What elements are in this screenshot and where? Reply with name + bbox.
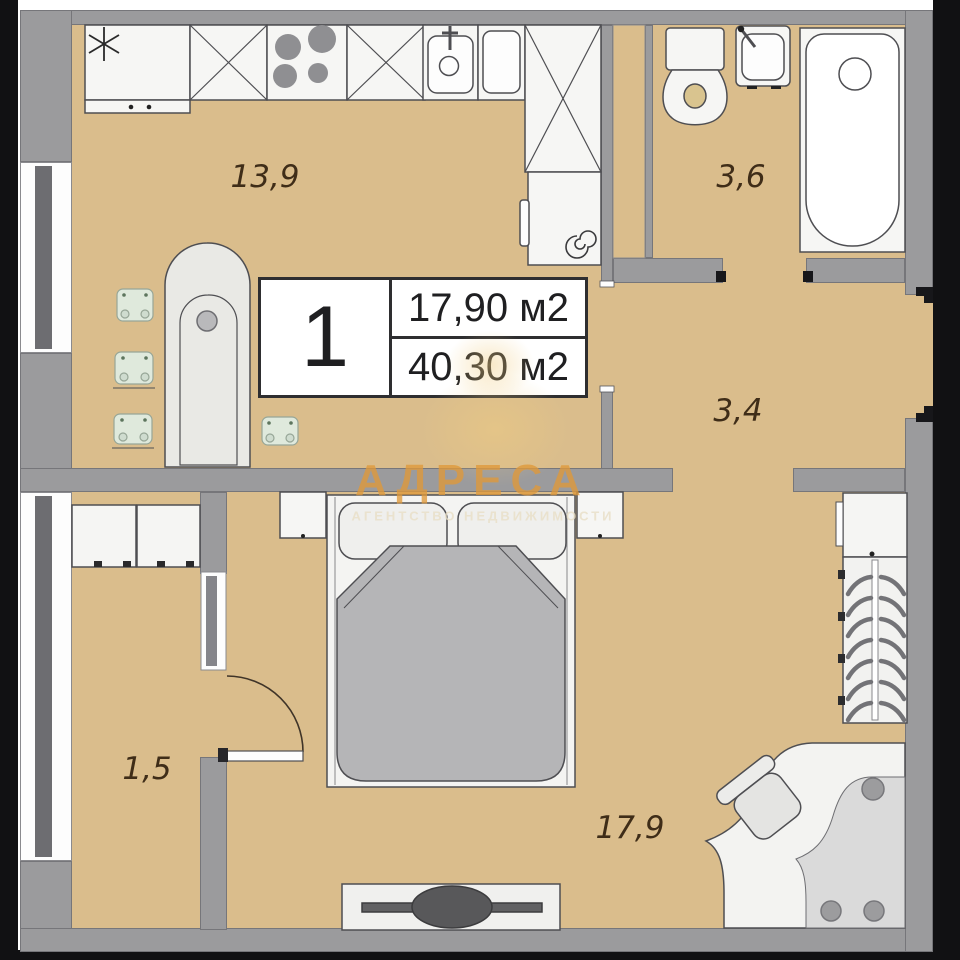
label-balcony-area: 1,5 — [122, 751, 171, 787]
stove — [267, 25, 347, 100]
wardrobe-hangers — [838, 557, 907, 723]
chair — [117, 289, 153, 321]
kitchen-door-jambs — [600, 281, 614, 392]
watermark-subtitle: АГЕНТСТВО НЕДВИЖИМОСТИ — [352, 509, 615, 524]
bathroom-sink — [736, 26, 790, 89]
rooms-count: 1 — [261, 280, 392, 395]
balcony-cabinet — [72, 505, 200, 567]
door-leaf — [227, 751, 303, 761]
kitchen-tall-cabinet — [525, 25, 601, 172]
door-swing-arc — [227, 676, 303, 752]
dining-table — [165, 243, 250, 467]
washing-machine — [520, 172, 601, 265]
living-area: 17,90 м2 — [392, 280, 585, 336]
floor-plan: 13,9 3,6 3,4 1,5 17,9 1 17,90 м2 40,30 м… — [0, 0, 960, 960]
label-bedroom-area: 17,9 — [595, 810, 664, 846]
bed — [327, 495, 575, 787]
chair — [112, 414, 154, 448]
kitchen-cabinet-2 — [347, 25, 425, 100]
chair — [262, 417, 298, 445]
toilet — [663, 28, 727, 125]
kitchen-cabinet-1 — [190, 25, 267, 100]
tv-stand — [342, 884, 560, 930]
label-hallway-area: 3,4 — [713, 393, 762, 429]
desk — [706, 743, 905, 928]
label-bathroom-area: 3,6 — [716, 159, 765, 195]
vent-shaft — [613, 25, 645, 258]
bathtub — [800, 28, 905, 252]
bathroom-door-marks — [716, 271, 813, 282]
entrance-door-marks — [916, 287, 933, 422]
balcony-door — [201, 572, 303, 762]
blanket — [337, 546, 565, 781]
wardrobe-cabinet — [836, 493, 907, 557]
watermark-logo-glow-small — [445, 330, 535, 400]
kitchen-sink — [423, 25, 478, 100]
nightstand-left — [280, 492, 326, 538]
watermark-title: АДРЕСА — [355, 456, 589, 506]
chair — [113, 352, 155, 388]
label-kitchen-area: 13,9 — [230, 159, 299, 195]
fridge — [85, 25, 190, 113]
kitchen-counter — [478, 25, 525, 100]
